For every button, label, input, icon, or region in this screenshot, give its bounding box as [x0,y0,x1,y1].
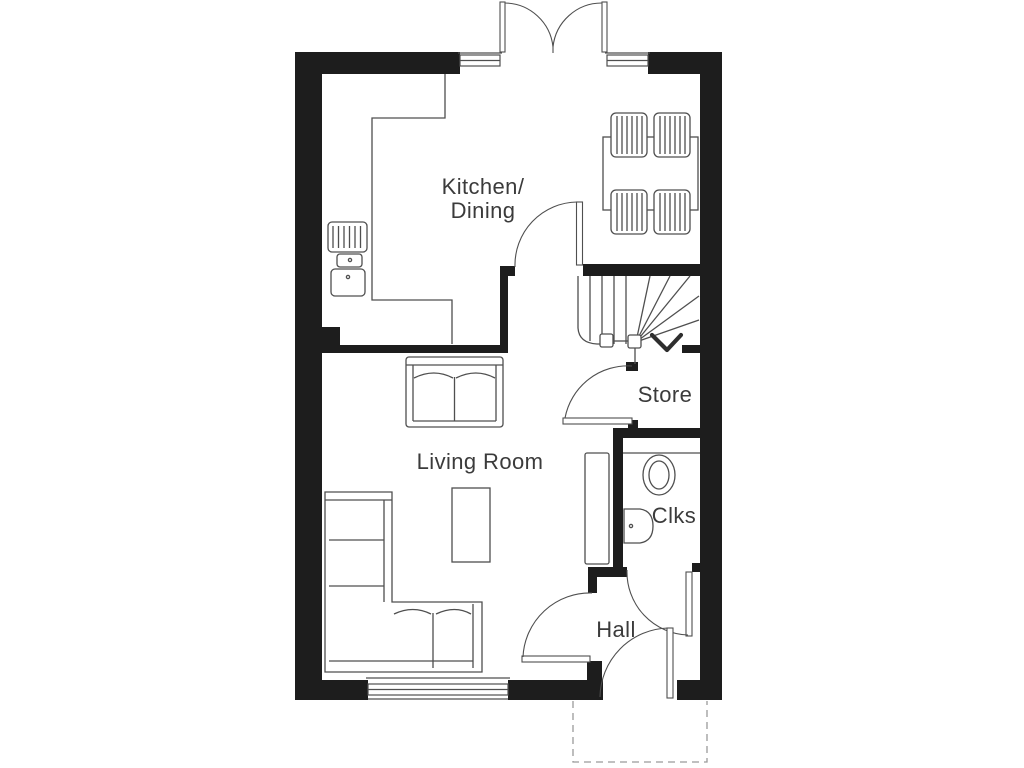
french-door-right-leaf [602,2,607,52]
kitchen-worktop [372,74,452,344]
label-kitchen-dining-line2: Dining [451,198,516,223]
dining-chair-top-right [654,113,690,157]
kitchen-door [515,202,583,267]
porch-outline [573,701,707,762]
cloakroom-door-leaf [686,572,692,636]
wall-store-jamb-top [626,362,638,371]
wall-above-stairs [583,264,700,276]
french-door-left-arc [505,3,553,47]
cloakroom-door [627,570,692,636]
wall-kitchen-living [322,345,508,353]
stairs [578,276,699,364]
wall-clks-door-jamb-right [692,563,722,572]
dining-chair-bottom-left [611,190,647,234]
wall-right [700,52,722,700]
wall-kitchen-door-jamb [500,266,515,276]
dining-window-right [605,53,650,66]
wall-clks-left [613,438,623,567]
floor-plan-drawing: Kitchen/ Dining Living Room Store Clks H… [0,0,1024,768]
stairs-newel-post-left [600,334,613,347]
dining-chair-top-left [611,113,647,157]
store-door [563,366,632,424]
cloakroom-door-arc [627,570,688,635]
cloakroom-fixtures [623,453,700,543]
french-doors [500,2,607,53]
stairs-direction-arrow-icon [652,335,681,350]
living-room-window [366,678,510,699]
label-store: Store [638,382,693,407]
label-cloakroom: Clks [652,503,696,528]
floor-plan-canvas: Kitchen/ Dining Living Room Store Clks H… [0,0,1024,768]
kitchen-door-arc [515,202,577,267]
label-hall: Hall [596,617,636,642]
wash-basin [624,509,653,543]
two-seat-sofa [406,357,503,427]
living-room-door-leaf [522,656,590,662]
label-living-room: Living Room [417,449,544,474]
living-room-door [522,593,592,662]
label-kitchen-dining-line1: Kitchen/ [442,174,525,199]
wall-clks-bottom [588,567,627,577]
kitchen-window-left [458,53,502,66]
coffee-table [452,488,490,562]
wall-bottom-left [295,680,368,700]
kitchen-door-leaf [577,202,583,265]
wall-hall-living-stub-bottom [587,661,602,683]
stairs-newel-post-right [628,335,641,348]
wall-clks-top [613,428,700,438]
store-door-arc [565,366,632,418]
wall-bottom-right [677,680,722,700]
french-door-right-arc [553,3,602,47]
wall-kitchen-hall-vertical [500,266,508,353]
wall-stub-under-stairs [682,345,700,353]
wall-left [295,52,322,700]
sink-bowl-large [331,269,365,296]
kitchen-sink-unit [328,222,367,296]
wall-hall-living-stub-top [588,577,597,593]
store-door-leaf [563,418,632,424]
dining-chair-bottom-right [654,190,690,234]
dining-set [603,113,698,234]
living-room-door-arc [523,593,592,657]
french-door-left-leaf [500,2,505,52]
hall-cupboard [585,453,609,564]
wall-top-left [295,52,460,74]
front-door-leaf [667,628,673,698]
sink-bowl-small [337,254,362,267]
stairs-winders [636,276,699,342]
